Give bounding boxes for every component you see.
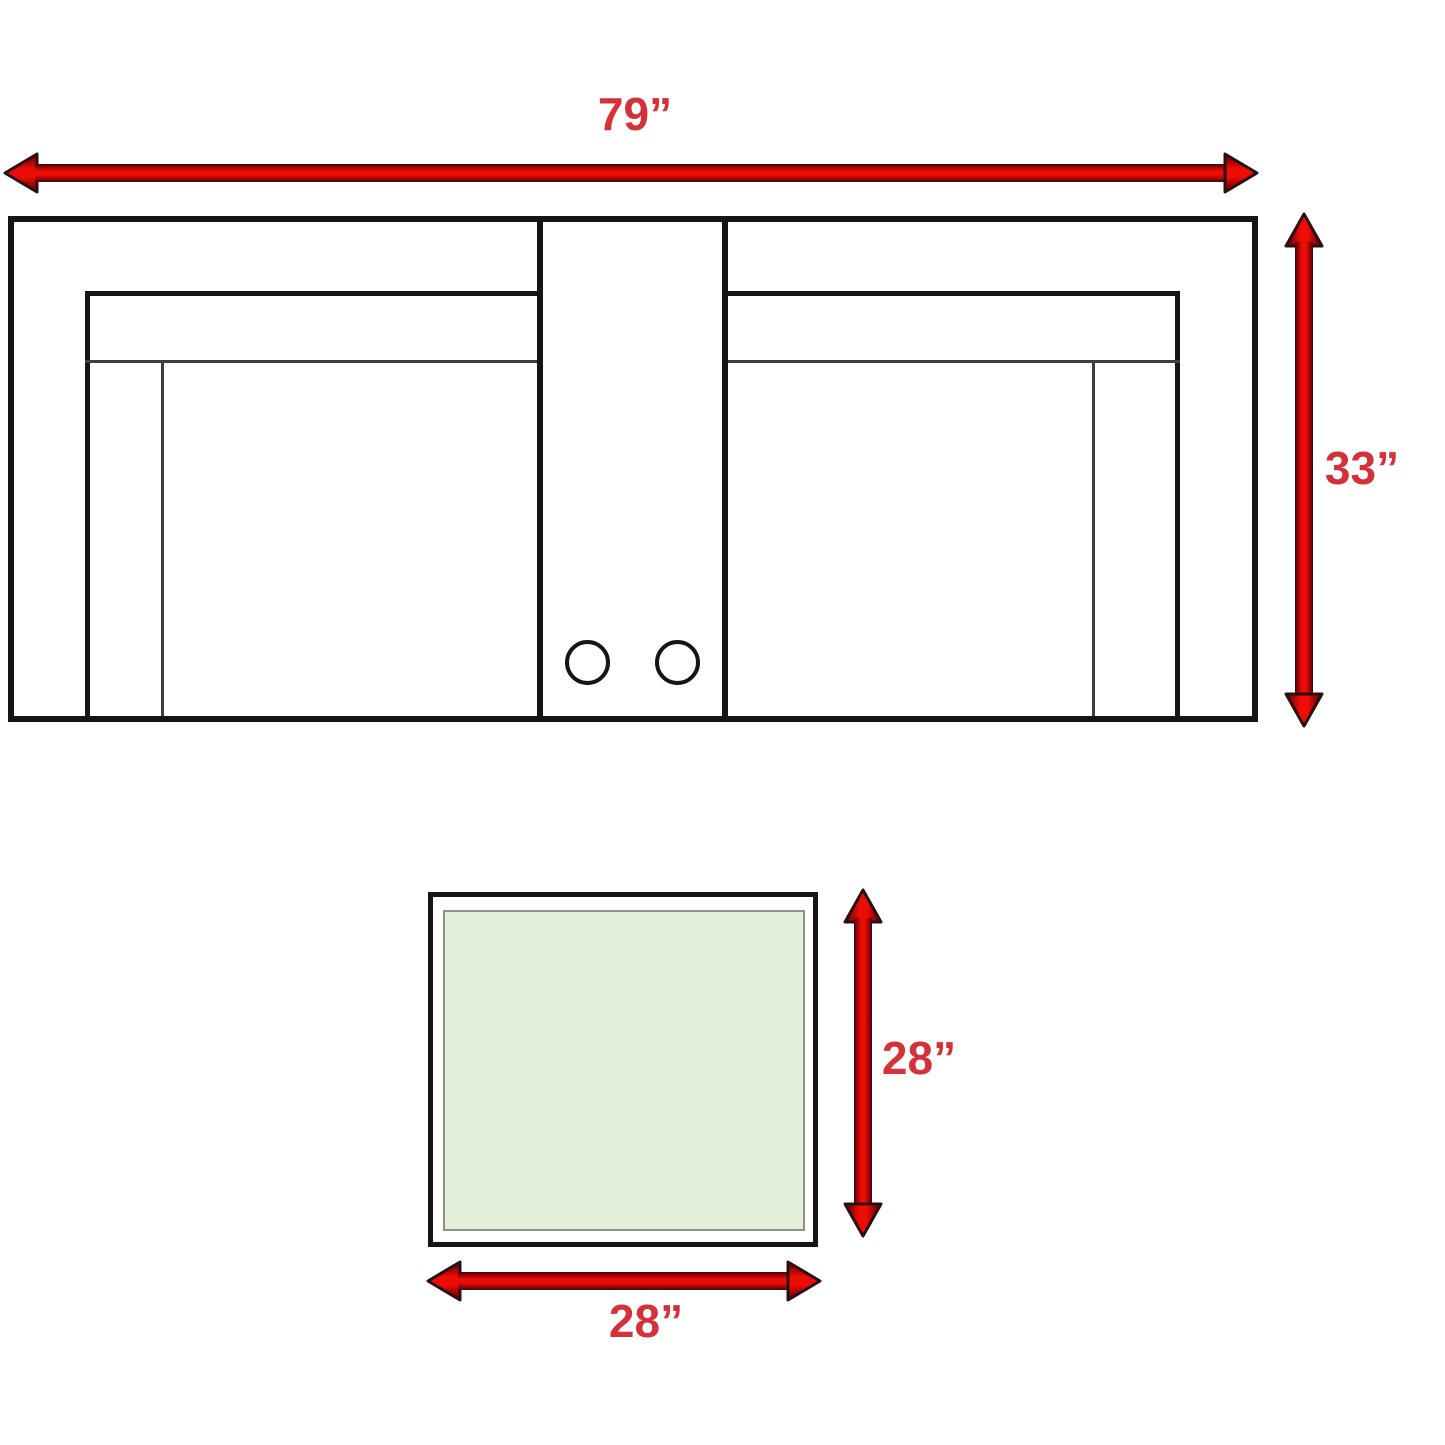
table-diagram: 28” 28” (0, 0, 1445, 1445)
table-height-label: 28” (882, 1035, 956, 1081)
dimension-diagram: 79” (0, 0, 1445, 1445)
table-top-surface (443, 910, 805, 1231)
table-width-label: 28” (609, 1298, 683, 1344)
table-height-dimension (843, 888, 883, 1238)
vertical-double-arrow-icon (843, 888, 883, 1238)
